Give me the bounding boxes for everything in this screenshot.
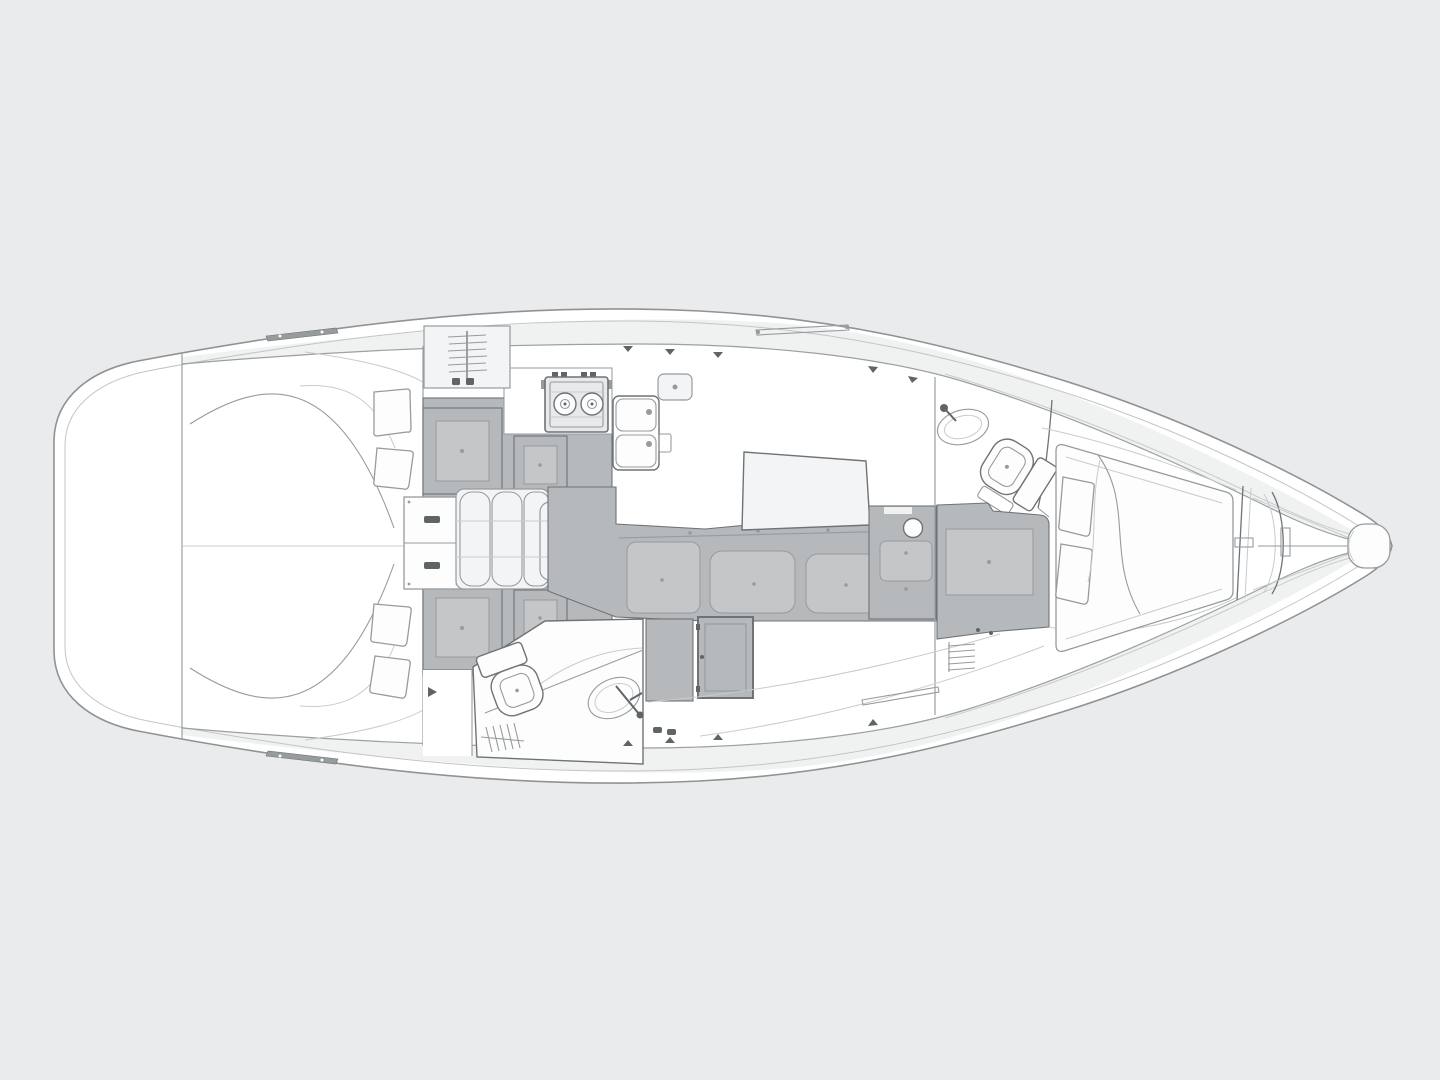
drawer-handle bbox=[424, 516, 440, 523]
step-button bbox=[987, 560, 991, 564]
anchor-locker bbox=[1348, 524, 1390, 568]
pillow bbox=[374, 448, 414, 489]
door-handle bbox=[700, 655, 704, 659]
aft-passage bbox=[423, 670, 472, 756]
cleat-knob bbox=[653, 727, 662, 733]
passage-floor bbox=[423, 670, 472, 756]
pillow bbox=[370, 656, 411, 698]
cushion-button bbox=[752, 582, 756, 586]
boat-layout-diagram bbox=[0, 0, 1440, 1080]
deck-cleat-knob bbox=[452, 378, 460, 385]
cushion-button bbox=[660, 578, 664, 582]
saloon-seat bbox=[514, 436, 567, 494]
pillow bbox=[371, 604, 412, 646]
sink-faucet bbox=[646, 441, 652, 447]
saloon-table bbox=[742, 452, 870, 530]
wet-unit-notch bbox=[884, 507, 912, 514]
table-top bbox=[456, 489, 549, 589]
drawer-cabinet bbox=[404, 497, 462, 589]
cushion-button bbox=[844, 583, 848, 587]
pillow bbox=[1059, 477, 1095, 536]
deck-cleat-knob bbox=[466, 378, 474, 385]
wet-unit-button bbox=[904, 551, 908, 555]
settee-button bbox=[826, 528, 830, 532]
rail-post bbox=[279, 755, 282, 758]
handrail-end bbox=[756, 330, 760, 334]
sink-faucet bbox=[646, 409, 652, 415]
pillow bbox=[374, 389, 411, 436]
cleat-knob bbox=[667, 729, 676, 735]
pillow bbox=[1056, 544, 1093, 604]
rail-post bbox=[321, 331, 324, 334]
wet-unit-locker bbox=[880, 541, 932, 581]
settee-cushion bbox=[627, 542, 700, 613]
wet-unit bbox=[869, 506, 936, 619]
deck-fitting-dot bbox=[989, 631, 993, 635]
yacht-floorplan-svg bbox=[0, 0, 1440, 1080]
locker-door bbox=[646, 619, 693, 701]
handrail-end bbox=[845, 325, 849, 329]
door-hinge bbox=[696, 624, 700, 630]
round-basin bbox=[904, 519, 923, 538]
seat-button bbox=[538, 616, 542, 620]
stove-burner-center bbox=[591, 403, 594, 406]
deck-fitting-dot bbox=[976, 628, 980, 632]
seat-button bbox=[460, 626, 464, 630]
screw-dot bbox=[408, 501, 411, 504]
settee-cushion bbox=[710, 551, 795, 613]
saloon-seat bbox=[423, 408, 502, 494]
door-hinge bbox=[696, 686, 700, 692]
deck-hatch-dot bbox=[673, 385, 678, 390]
settee-button bbox=[688, 531, 692, 535]
sink-unit bbox=[613, 396, 659, 470]
stern-vent-locker bbox=[424, 326, 510, 388]
stove-burner-center bbox=[564, 403, 567, 406]
rail-post bbox=[321, 759, 324, 762]
seat-button bbox=[538, 463, 542, 467]
seat-button bbox=[460, 449, 464, 453]
screw-dot bbox=[408, 583, 411, 586]
aft-head-door bbox=[698, 617, 753, 698]
wet-unit-button bbox=[904, 587, 908, 591]
aft-lockers bbox=[646, 617, 753, 701]
rail-post bbox=[279, 335, 282, 338]
drawer-handle bbox=[424, 562, 440, 569]
faucet-head bbox=[637, 712, 644, 719]
